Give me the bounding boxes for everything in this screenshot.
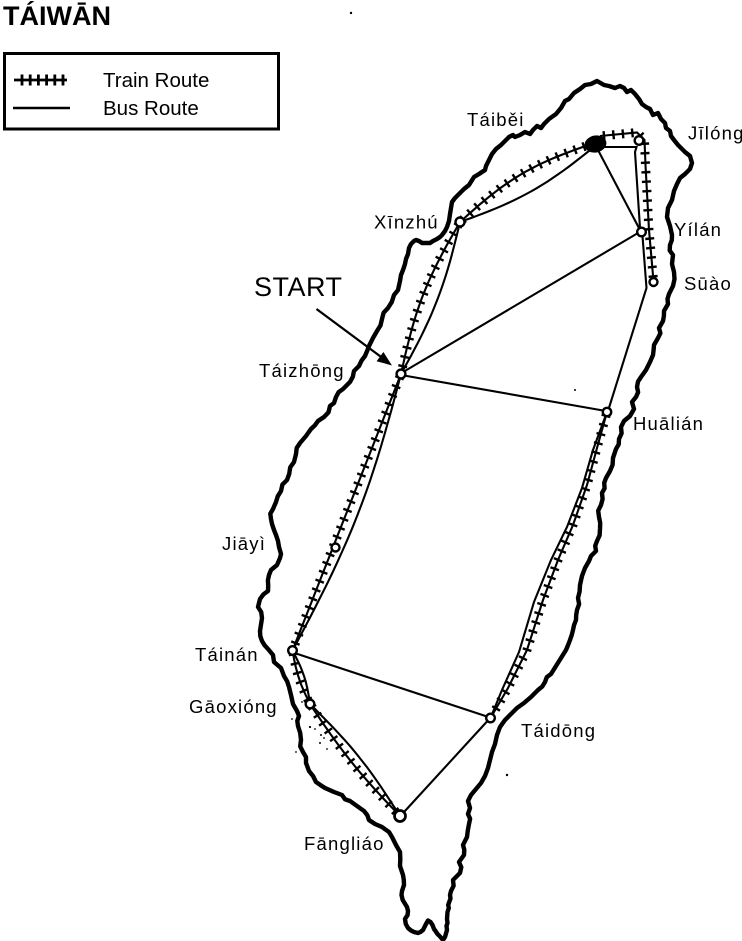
svg-text:Gāoxióng: Gāoxióng [189, 696, 278, 717]
svg-text:Jīlóng: Jīlóng [688, 123, 742, 144]
svg-text:Táizhōng: Táizhōng [259, 360, 345, 381]
svg-text:Sūào: Sūào [684, 273, 732, 294]
svg-text:Táidōng: Táidōng [521, 720, 596, 741]
svg-text:Táiběi: Táiběi [467, 109, 525, 130]
svg-text:TÁIWĀN: TÁIWĀN [3, 0, 111, 31]
svg-text:Train Route: Train Route [103, 69, 209, 92]
svg-text:Huālián: Huālián [633, 413, 704, 434]
svg-text:Fāngliáo: Fāngliáo [304, 833, 385, 854]
svg-text:Xīnzhú: Xīnzhú [374, 212, 439, 233]
svg-text:START: START [254, 272, 343, 302]
svg-text:Jiāyì: Jiāyì [222, 533, 266, 554]
svg-text:Bus Route: Bus Route [103, 97, 199, 120]
svg-text:Táinán: Táinán [195, 644, 259, 665]
svg-text:Yílán: Yílán [674, 219, 722, 240]
